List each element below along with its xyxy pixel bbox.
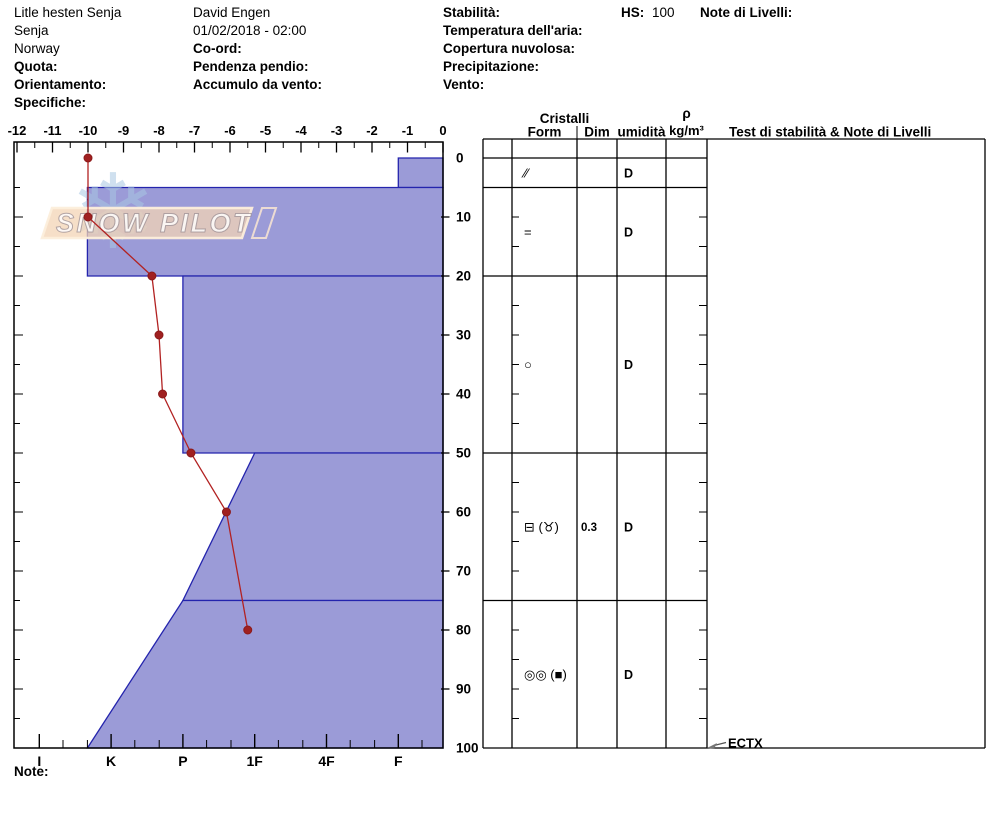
crystal-form-symbol: = [524,224,532,239]
crystal-form-symbol: ◎◎ (■) [524,667,567,682]
temperature-point [84,154,92,162]
temp-tick-label: 0 [439,123,446,138]
depth-tick-label: 90 [456,682,471,697]
temp-tick-label: -11 [43,123,61,138]
hardness-tick-label: 1F [247,753,264,769]
hardness-tick-label: F [394,753,403,769]
snow-layer [87,601,443,749]
snowpilot-profile-page: { "header": { "location": ["Litle hesten… [0,0,994,840]
temp-tick-label: -12 [8,123,27,138]
crystal-form-symbol: ○ [524,357,532,372]
snow-layer [183,276,443,453]
hardness-tick-label: 4F [318,753,335,769]
temp-tick-label: -5 [260,123,272,138]
temperature-axis: -12-11-10-9-8-7-6-5-4-3-2-10 [8,123,447,153]
humidity-column-header: umidità [617,125,665,140]
stability-test-result: ECTX [728,736,763,751]
stability-column-header: Test di stabilità & Note di Livelli [729,125,931,140]
snow-profile-figure: ❄SNOW PILOT-12-11-10-9-8-7-6-5-4-3-2-10F… [0,0,994,840]
temperature-point [84,213,92,221]
temp-tick-label: -2 [366,123,378,138]
depth-tick-label: 40 [456,387,471,402]
humidity-value: D [624,668,633,682]
humidity-value: D [624,166,633,180]
depth-tick-label: 60 [456,505,471,520]
temperature-point [159,390,167,398]
crystal-dim-value: 0.3 [581,522,597,534]
crystal-table: CristalliFormDimumiditàρkg/m³Test di sta… [483,106,985,748]
temp-tick-label: -3 [331,123,343,138]
temp-tick-label: -6 [224,123,236,138]
temp-tick-label: -10 [79,123,98,138]
temp-tick-label: -1 [402,123,414,138]
crystal-form-symbol: ⊟ (♉) [524,519,559,534]
hardness-tick-label: P [178,753,187,769]
depth-tick-label: 50 [456,446,471,461]
depth-tick-label: 70 [456,564,471,579]
temperature-point [244,626,252,634]
logo-text: SNOW PILOT [56,208,252,238]
snow-layer [398,158,443,188]
depth-tick-label: 10 [456,210,471,225]
humidity-value: D [624,520,633,534]
temp-tick-label: -4 [295,123,307,138]
density-header-unit: kg/m³ [669,123,704,138]
crystal-form-symbol: ⁄⁄ [521,165,530,180]
form-column-header: Form [528,125,562,140]
density-header-rho: ρ [682,106,690,121]
depth-tick-label: 0 [456,151,464,166]
depth-tick-label: 100 [456,741,479,756]
humidity-value: D [624,358,633,372]
temperature-point [155,331,163,339]
temp-tick-label: -9 [118,123,130,138]
depth-tick-label: 30 [456,328,471,343]
snow-layer [183,453,443,601]
note-label: Note: [14,764,49,779]
depth-tick-label: 20 [456,269,471,284]
temperature-point [222,508,230,516]
dim-column-header: Dim [584,125,610,140]
temp-tick-label: -7 [189,123,201,138]
depth-tick-label: 80 [456,623,471,638]
humidity-value: D [624,225,633,239]
temperature-point [148,272,156,280]
temperature-point [187,449,195,457]
temp-tick-label: -8 [153,123,165,138]
hardness-tick-label: K [106,753,116,769]
